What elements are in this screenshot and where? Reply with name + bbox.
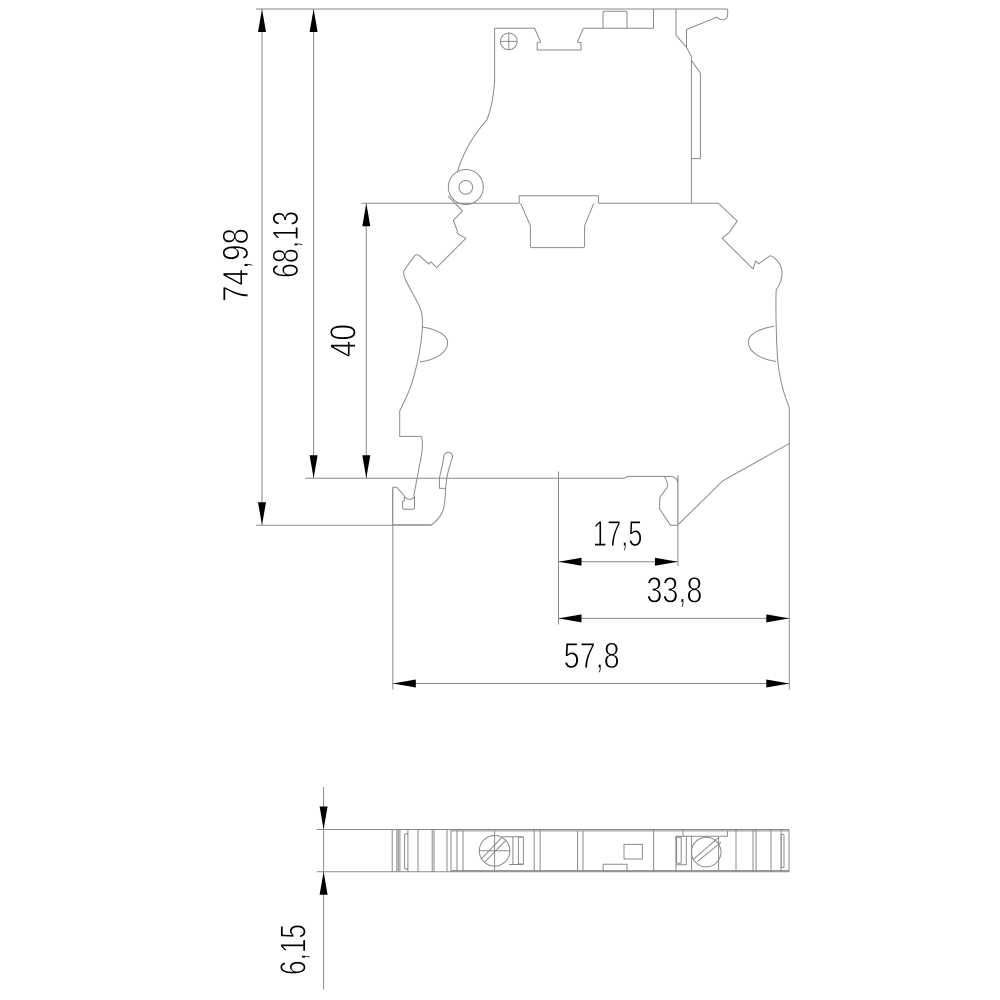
- svg-text:40: 40: [324, 324, 364, 357]
- svg-text:74,98: 74,98: [216, 228, 256, 302]
- svg-text:57,8: 57,8: [564, 636, 620, 676]
- svg-text:6,15: 6,15: [273, 924, 313, 975]
- svg-text:17,5: 17,5: [593, 514, 643, 554]
- svg-text:68,13: 68,13: [266, 211, 306, 278]
- svg-text:33,8: 33,8: [646, 570, 702, 610]
